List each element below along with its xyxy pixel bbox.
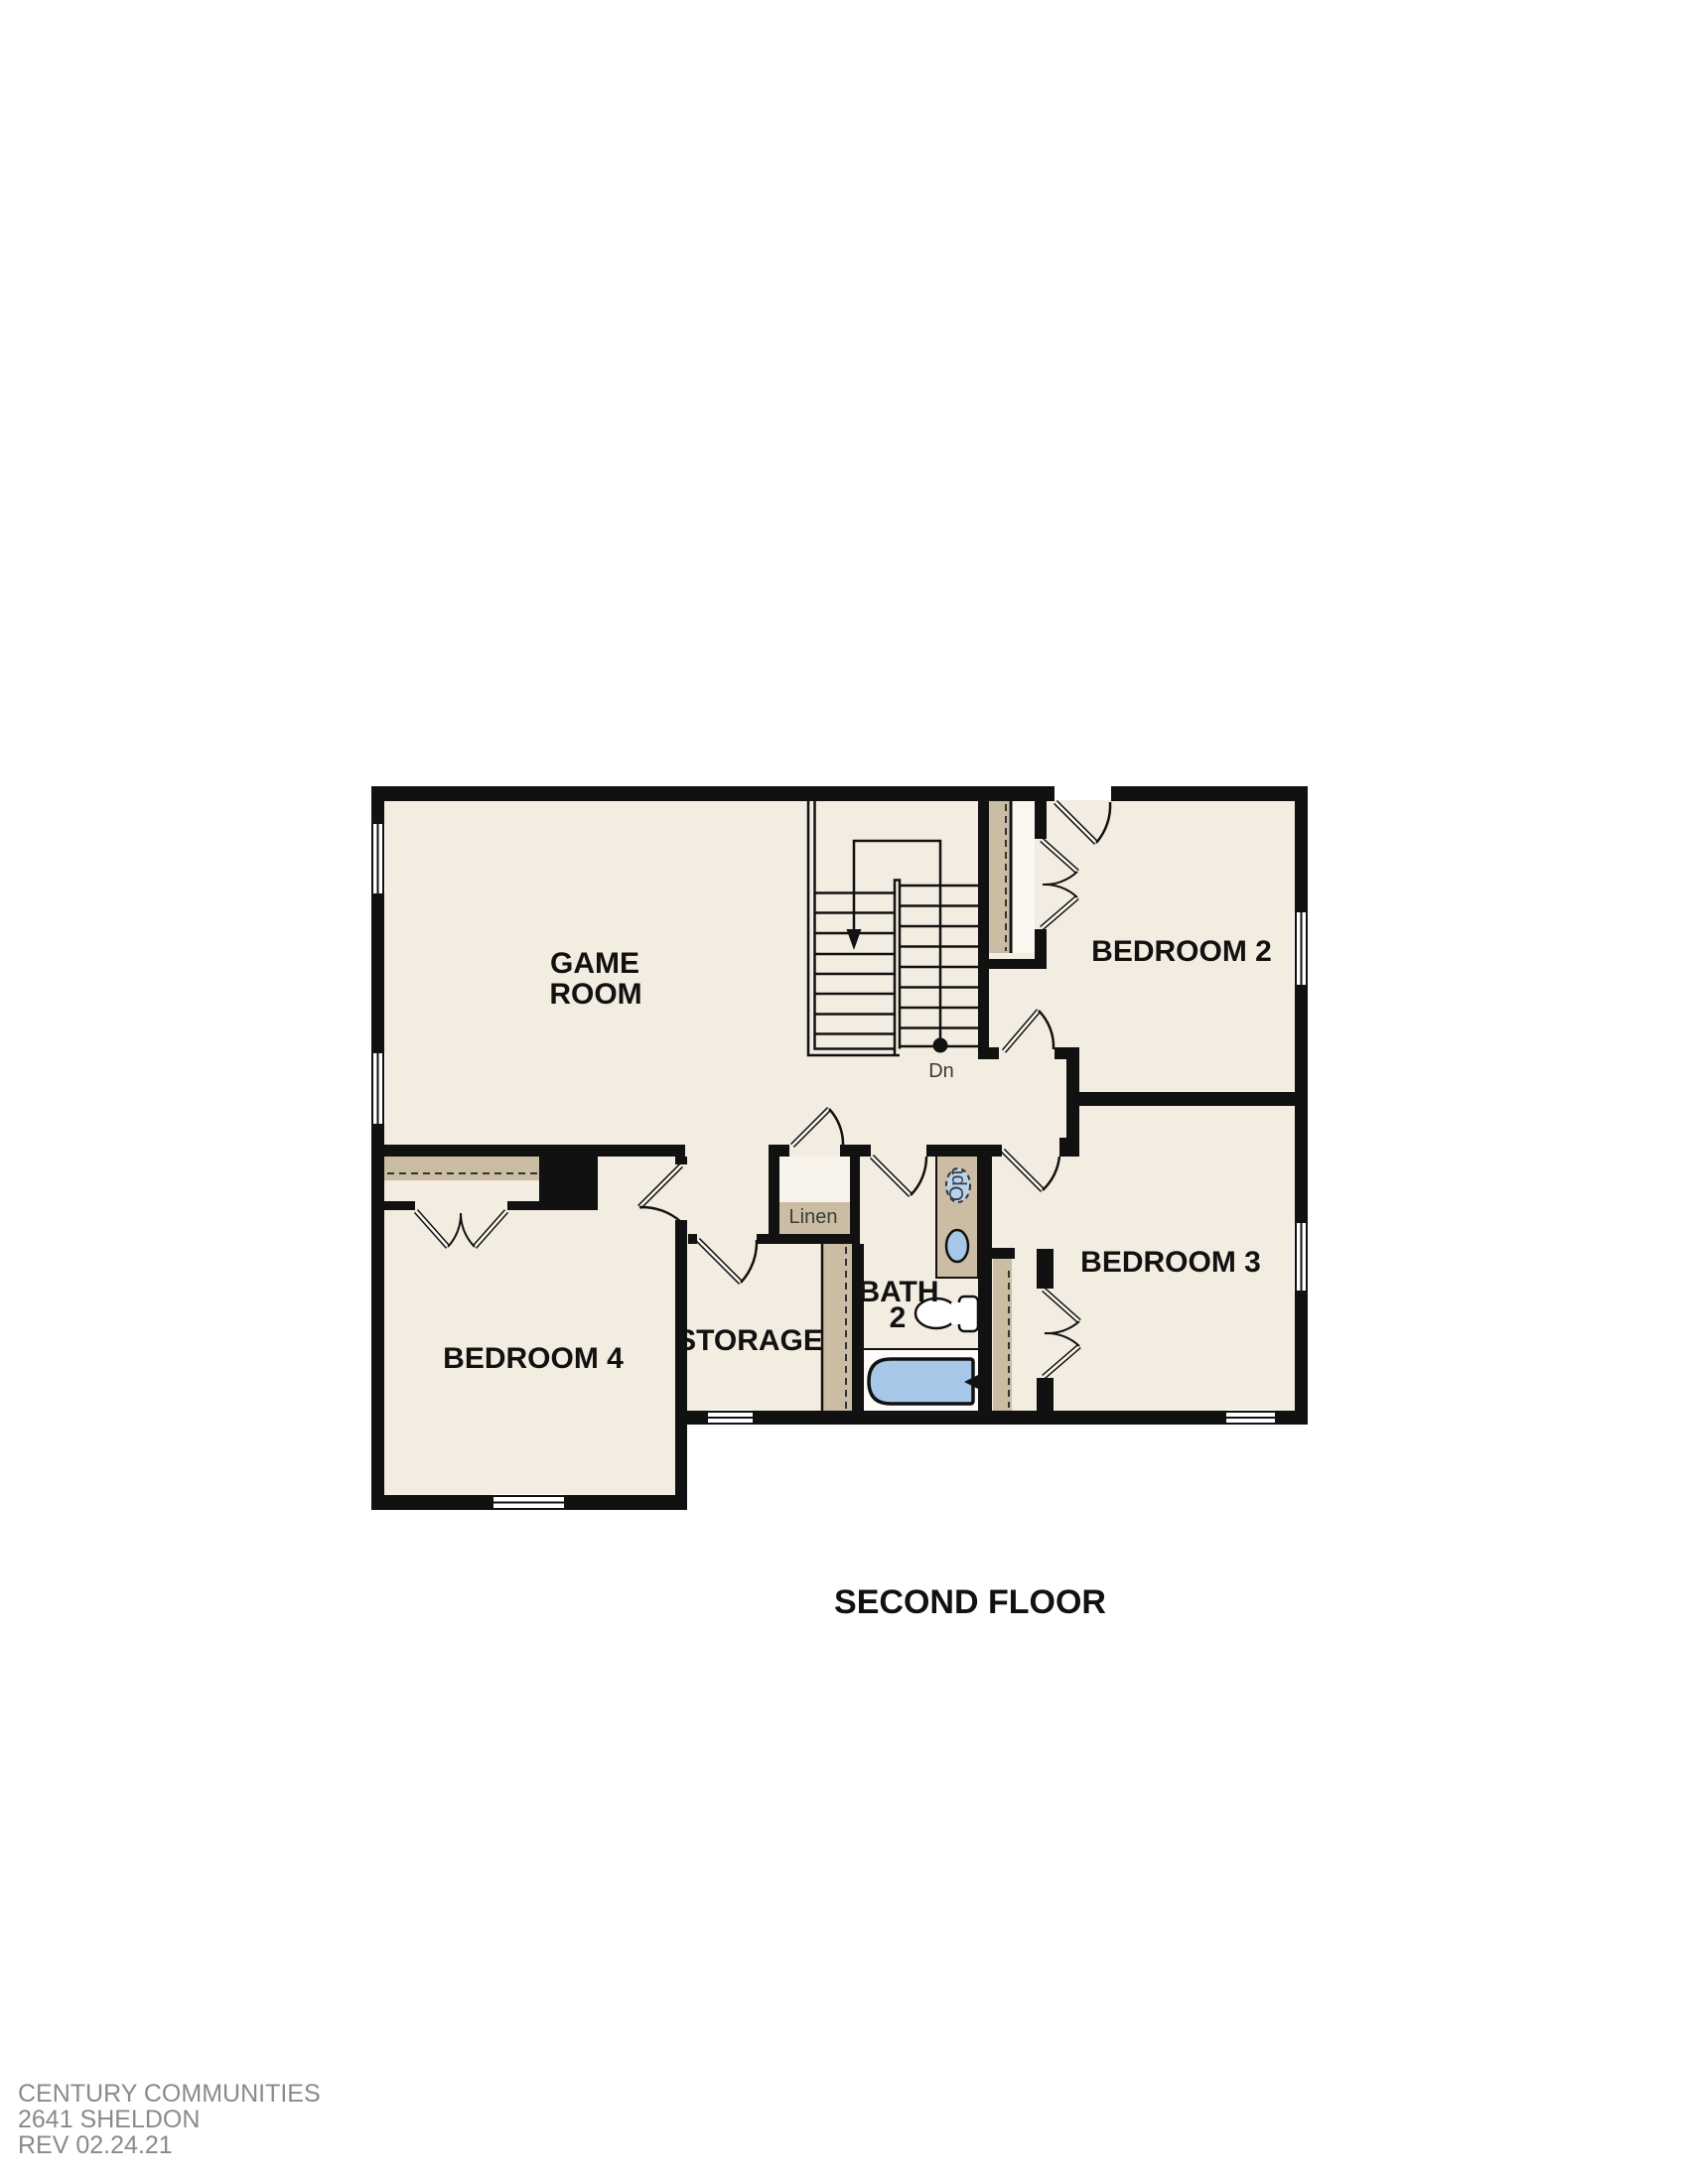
svg-text:2641 SHELDON: 2641 SHELDON bbox=[18, 2106, 200, 2133]
svg-text:BEDROOM 4: BEDROOM 4 bbox=[443, 1342, 624, 1375]
svg-text:SECOND FLOOR: SECOND FLOOR bbox=[834, 1583, 1106, 1621]
svg-text:CENTURY COMMUNITIES: CENTURY COMMUNITIES bbox=[18, 2080, 321, 2108]
svg-text:BEDROOM 2: BEDROOM 2 bbox=[1091, 935, 1272, 968]
svg-text:STORAGE: STORAGE bbox=[676, 1324, 823, 1357]
svg-text:REV 02.24.21: REV 02.24.21 bbox=[18, 2131, 173, 2159]
svg-text:BEDROOM 3: BEDROOM 3 bbox=[1080, 1246, 1261, 1279]
svg-text:Opt: Opt bbox=[946, 1168, 968, 1201]
svg-text:ROOM: ROOM bbox=[549, 978, 641, 1011]
svg-text:Dn: Dn bbox=[928, 1060, 954, 1082]
svg-text:2: 2 bbox=[890, 1301, 907, 1334]
svg-text:GAME: GAME bbox=[550, 947, 639, 980]
svg-text:Linen: Linen bbox=[789, 1206, 838, 1228]
